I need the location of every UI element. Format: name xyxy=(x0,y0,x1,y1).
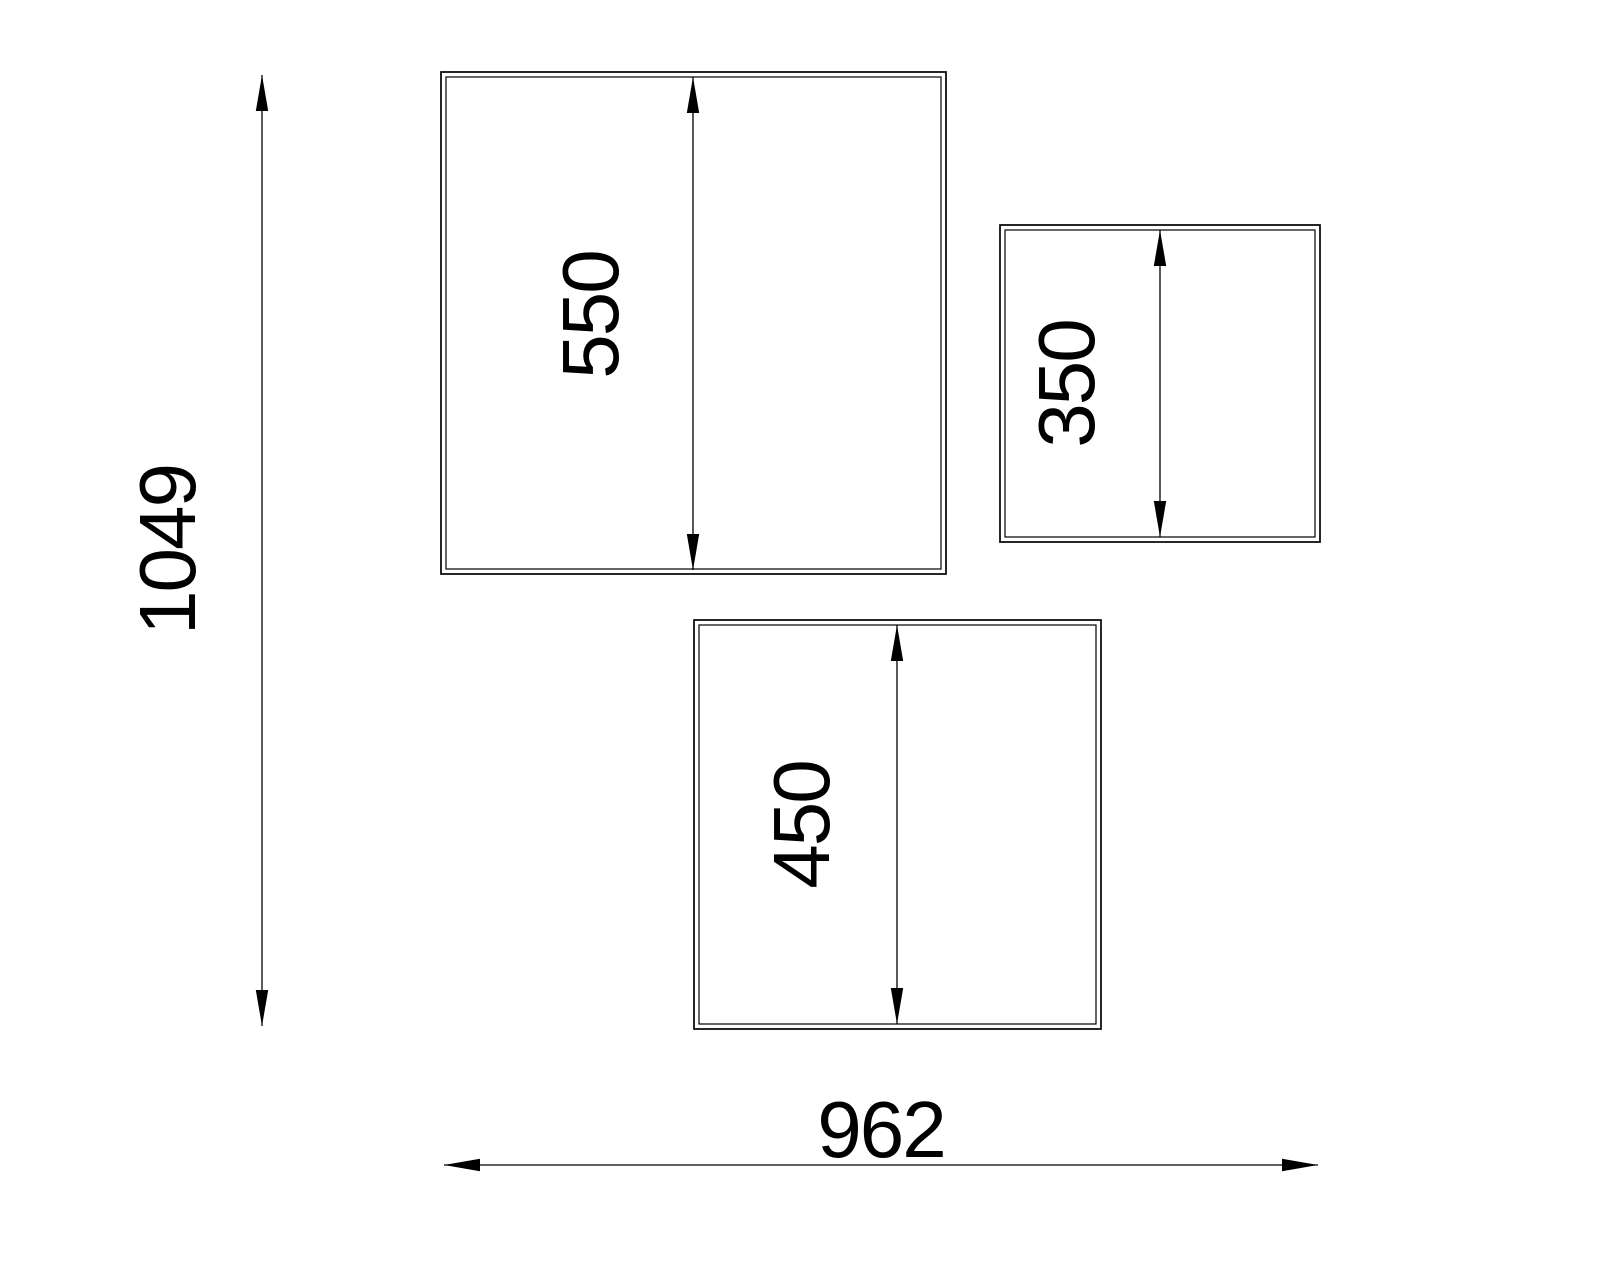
arrow-up-icon xyxy=(891,625,903,661)
arrow-right-icon xyxy=(1282,1159,1318,1171)
dim-label-overall-width: 962 xyxy=(817,1085,944,1174)
technical-drawing: 550 350 450 1049 962 xyxy=(0,0,1600,1280)
arrow-down-icon xyxy=(256,990,268,1026)
arrow-up-icon xyxy=(1154,230,1166,266)
arrow-up-icon xyxy=(687,77,699,113)
drawing-canvas: 550 350 450 1049 962 xyxy=(0,0,1600,1280)
arrow-down-icon xyxy=(687,534,699,570)
arrow-down-icon xyxy=(1154,501,1166,537)
dim-label-panel-small: 350 xyxy=(1022,320,1111,447)
arrow-left-icon xyxy=(444,1159,480,1171)
arrow-up-icon xyxy=(256,75,268,111)
dim-label-overall-height: 1049 xyxy=(123,465,212,635)
dim-label-panel-medium: 450 xyxy=(757,761,846,888)
dim-label-panel-large: 550 xyxy=(546,251,635,378)
arrow-down-icon xyxy=(891,988,903,1024)
